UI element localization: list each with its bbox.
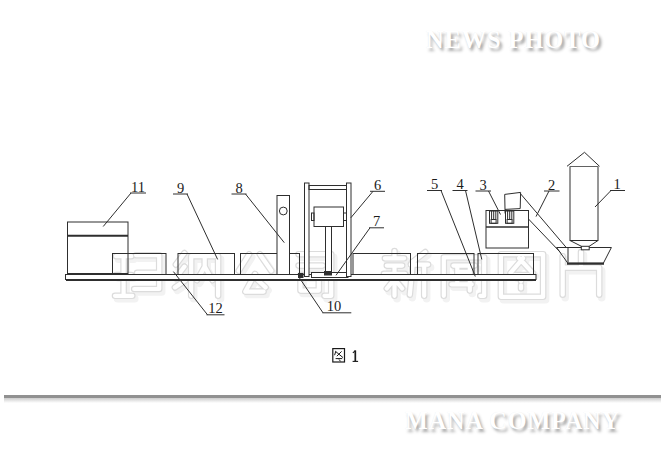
svg-text:11: 11 — [131, 179, 145, 195]
svg-text:9: 9 — [177, 180, 184, 196]
svg-text:1: 1 — [613, 176, 620, 192]
svg-text:6: 6 — [374, 177, 381, 193]
svg-text:5: 5 — [431, 176, 438, 192]
svg-text:2: 2 — [548, 177, 555, 193]
svg-text:12: 12 — [208, 300, 223, 316]
svg-text:10: 10 — [327, 298, 342, 314]
svg-text:4: 4 — [456, 176, 464, 192]
svg-text:8: 8 — [235, 180, 242, 196]
svg-text:3: 3 — [479, 177, 486, 193]
svg-text:7: 7 — [373, 213, 380, 229]
